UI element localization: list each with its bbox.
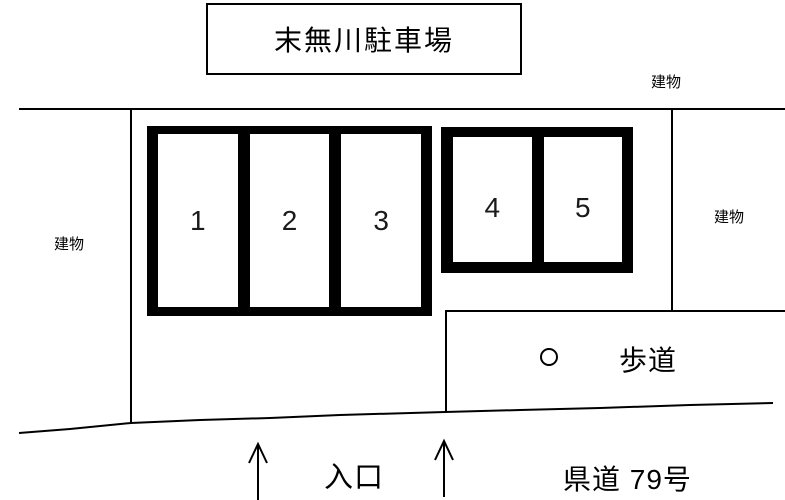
parking-space-3-number: 3: [373, 205, 389, 237]
up-arrow-icon: [435, 441, 453, 497]
parking-space-3: 3: [341, 134, 421, 307]
sidewalk-label: 歩道: [619, 339, 677, 379]
parking-space-1-number: 1: [190, 205, 206, 237]
parking-space-2-number: 2: [282, 205, 298, 237]
building-label-right: 建物: [714, 206, 744, 227]
road-label: 県道 79号: [563, 458, 692, 498]
map-title: 末無川駐車場: [274, 19, 454, 59]
circle-icon: [540, 348, 558, 366]
map-title-box: 末無川駐車場: [206, 3, 522, 75]
parking-space-2: 2: [250, 134, 330, 307]
parking-block-2: 4 5: [441, 127, 633, 273]
parking-space-4-number: 4: [484, 192, 500, 224]
road-edge-line: [19, 403, 773, 433]
sidewalk-left-line: [445, 310, 447, 412]
parking-space-4: 4: [453, 137, 532, 262]
building-label-left: 建物: [54, 233, 84, 254]
right-building-boundary-line: [671, 108, 673, 312]
up-arrow-icon: [249, 444, 267, 500]
parking-space-5: 5: [544, 137, 623, 262]
parking-space-1: 1: [158, 134, 238, 307]
parking-block-1: 1 2 3: [147, 126, 432, 316]
entrance-label: 入口: [324, 454, 384, 496]
building-label-top: 建物: [651, 71, 681, 92]
sidewalk-top-line: [445, 310, 785, 312]
left-building-boundary-line: [130, 108, 132, 423]
parking-map: 末無川駐車場 建物 建物 建物 1 2 3 4 5 歩道: [0, 0, 785, 500]
parking-space-5-number: 5: [575, 192, 591, 224]
